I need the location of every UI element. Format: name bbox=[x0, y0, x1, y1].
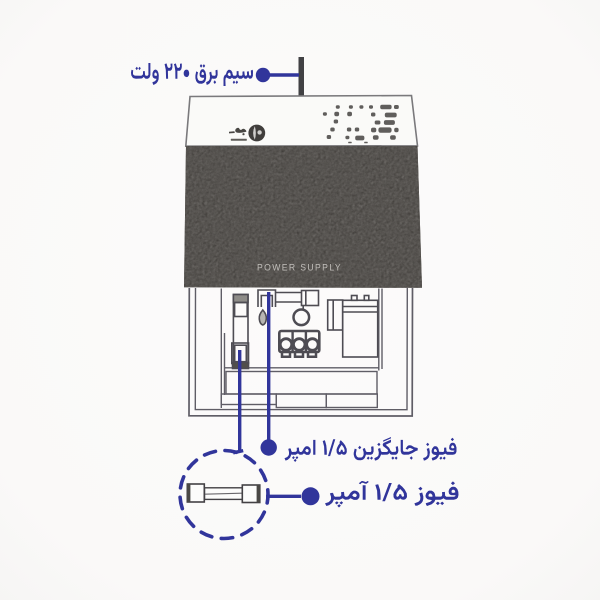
svg-text:POWER SUPPLY: POWER SUPPLY bbox=[257, 262, 342, 273]
